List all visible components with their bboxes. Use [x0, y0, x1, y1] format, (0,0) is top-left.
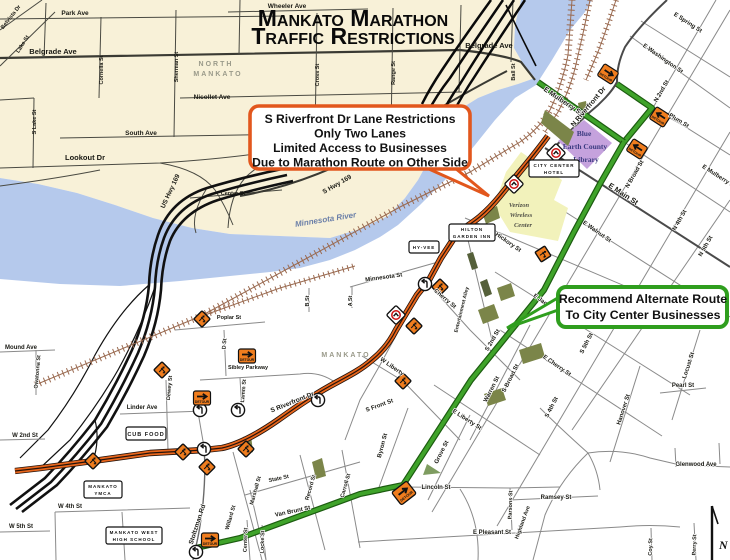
svg-text:GARDEN INN: GARDEN INN	[453, 234, 492, 239]
svg-text:MANKATO: MANKATO	[193, 71, 242, 78]
svg-text:Lookout Dr: Lookout Dr	[65, 153, 105, 162]
svg-text:Cornelia St: Cornelia St	[99, 55, 105, 84]
svg-text:Due to Marathon Route on Other: Due to Marathon Route on Other Side	[252, 156, 468, 170]
svg-text:Traffic Restrictions: Traffic Restrictions	[251, 23, 455, 49]
svg-text:MANKATO WEST: MANKATO WEST	[110, 530, 159, 535]
svg-text:MANKATO: MANKATO	[88, 484, 118, 489]
svg-text:Pearl St: Pearl St	[672, 383, 694, 389]
svg-text:Poplar St: Poplar St	[217, 315, 241, 321]
svg-text:Blue: Blue	[577, 129, 592, 138]
svg-text:CITY CENTER: CITY CENTER	[534, 163, 575, 168]
svg-text:HILTON: HILTON	[461, 227, 483, 232]
svg-text:Earth County: Earth County	[563, 142, 608, 151]
svg-text:MANKATO: MANKATO	[321, 352, 370, 359]
svg-text:D St: D St	[222, 338, 229, 350]
svg-text:Verizon: Verizon	[509, 202, 530, 209]
svg-text:Center St: Center St	[221, 191, 246, 197]
svg-text:To City Center Businesses: To City Center Businesses	[566, 308, 721, 322]
svg-text:Only Two Lanes: Only Two Lanes	[314, 127, 406, 141]
svg-text:W 2nd St: W 2nd St	[12, 433, 38, 439]
svg-text:Coy St: Coy St	[648, 538, 655, 556]
svg-text:CUB FOOD: CUB FOOD	[127, 432, 164, 438]
svg-text:S Lake St: S Lake St	[32, 109, 38, 134]
svg-text:Range St: Range St	[391, 61, 397, 85]
svg-text:Center St: Center St	[243, 527, 250, 552]
svg-text:Recommend Alternate Route: Recommend Alternate Route	[559, 292, 727, 306]
svg-text:HIGH SCHOOL: HIGH SCHOOL	[113, 537, 156, 542]
svg-text:Sibley Parkway: Sibley Parkway	[228, 365, 269, 371]
svg-text:Parsons St: Parsons St	[508, 490, 515, 519]
svg-text:Park Ave: Park Ave	[61, 10, 89, 17]
svg-text:W 4th St: W 4th St	[58, 504, 82, 510]
svg-text:Wireless: Wireless	[510, 212, 533, 219]
svg-text:Lincoln St: Lincoln St	[422, 485, 451, 491]
svg-text:Locke St: Locke St	[260, 530, 267, 553]
svg-text:Perry St: Perry St	[692, 534, 699, 555]
svg-text:N: N	[718, 538, 729, 552]
svg-text:South Ave: South Ave	[125, 130, 157, 137]
svg-text:Belgrade Ave: Belgrade Ave	[29, 47, 76, 56]
svg-text:YMCA: YMCA	[94, 491, 111, 496]
svg-text:Nicollet Ave: Nicollet Ave	[194, 94, 231, 101]
svg-text:E Pleasant St: E Pleasant St	[473, 530, 511, 536]
svg-text:Linder Ave: Linder Ave	[127, 405, 158, 411]
svg-text:B St: B St	[305, 295, 311, 306]
svg-text:Cross St: Cross St	[315, 64, 321, 87]
svg-text:Ball St: Ball St	[511, 63, 517, 80]
svg-text:Limited Access to Businesses: Limited Access to Businesses	[273, 141, 447, 155]
svg-text:Mound Ave: Mound Ave	[5, 345, 38, 351]
svg-text:Center: Center	[514, 222, 533, 229]
svg-text:W 5th St: W 5th St	[9, 524, 33, 530]
svg-text:HOTEL: HOTEL	[544, 170, 564, 175]
svg-text:A St: A St	[348, 295, 354, 306]
svg-text:NORTH: NORTH	[199, 61, 234, 68]
svg-text:Belgrade Ave: Belgrade Ave	[465, 41, 512, 50]
svg-text:Ramsey St: Ramsey St	[541, 495, 572, 501]
svg-text:Glenwood Ave: Glenwood Ave	[675, 462, 717, 468]
svg-text:HY-VEE: HY-VEE	[413, 245, 436, 250]
svg-text:Sherman St: Sherman St	[174, 52, 180, 83]
svg-text:S Riverfront Dr Lane Restricti: S Riverfront Dr Lane Restrictions	[265, 112, 456, 126]
